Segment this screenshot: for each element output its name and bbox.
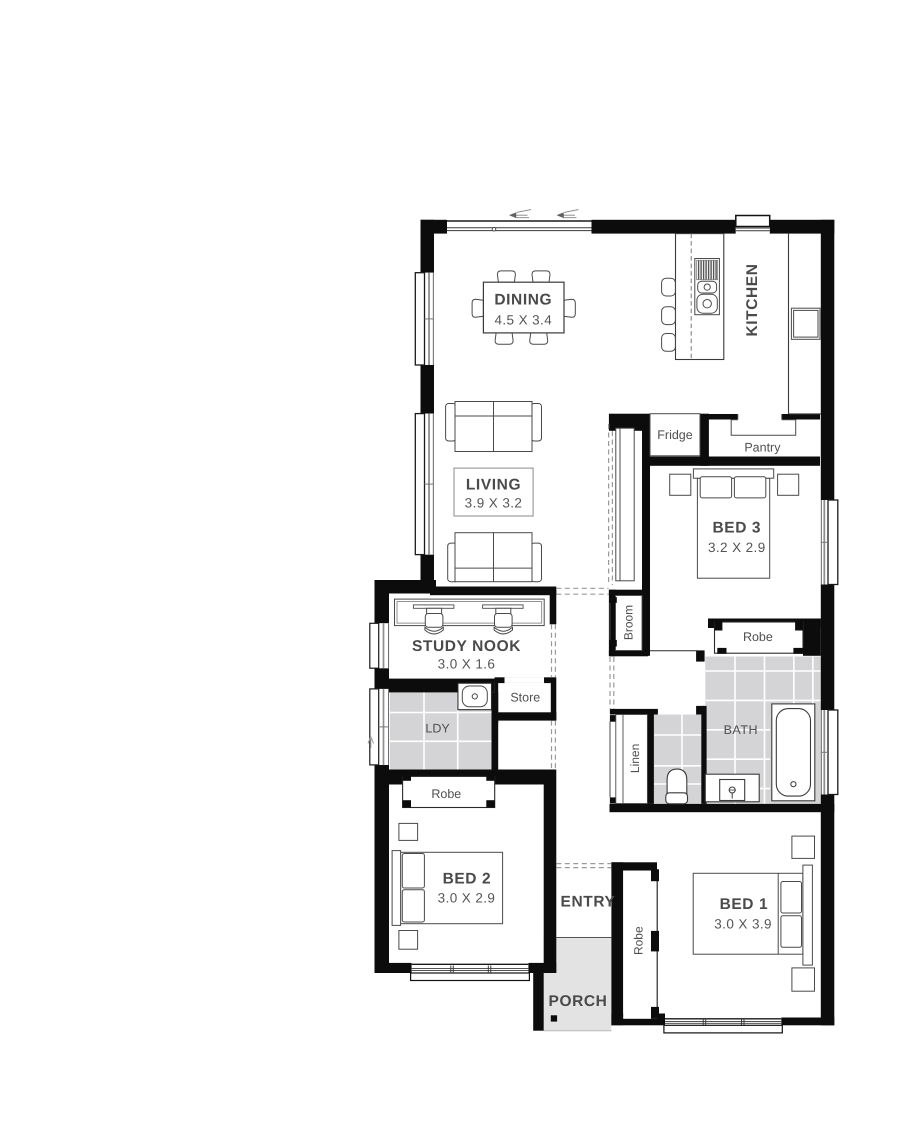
- svg-text:BATH: BATH: [724, 723, 758, 737]
- svg-text:ENTRY: ENTRY: [561, 894, 616, 911]
- svg-text:Broom: Broom: [622, 605, 636, 640]
- svg-text:KITCHEN: KITCHEN: [744, 263, 761, 336]
- svg-text:3.0 X 2.9: 3.0 X 2.9: [438, 890, 496, 905]
- svg-text:4.5 X 3.4: 4.5 X 3.4: [494, 313, 552, 328]
- svg-text:Robe: Robe: [632, 926, 646, 955]
- svg-text:STUDY NOOK: STUDY NOOK: [412, 638, 521, 655]
- svg-text:PORCH: PORCH: [549, 993, 608, 1010]
- svg-text:LDY: LDY: [425, 722, 450, 736]
- svg-text:Store: Store: [510, 691, 540, 705]
- svg-text:Robe: Robe: [431, 787, 461, 801]
- svg-text:Linen: Linen: [628, 744, 642, 773]
- svg-text:Fridge: Fridge: [657, 428, 692, 442]
- svg-text:BED 1: BED 1: [720, 896, 769, 913]
- svg-text:Robe: Robe: [743, 630, 773, 644]
- svg-text:3.9 X 3.2: 3.9 X 3.2: [465, 495, 523, 510]
- svg-text:LIVING: LIVING: [466, 476, 521, 493]
- svg-text:3.0 X 1.6: 3.0 X 1.6: [438, 657, 496, 672]
- svg-text:3.2 X 2.9: 3.2 X 2.9: [708, 540, 766, 555]
- svg-text:BED 2: BED 2: [443, 870, 492, 887]
- svg-text:DINING: DINING: [494, 291, 552, 308]
- svg-text:BED 3: BED 3: [712, 519, 761, 536]
- svg-text:3.0 X 3.9: 3.0 X 3.9: [714, 916, 772, 931]
- svg-text:Pantry: Pantry: [744, 441, 781, 455]
